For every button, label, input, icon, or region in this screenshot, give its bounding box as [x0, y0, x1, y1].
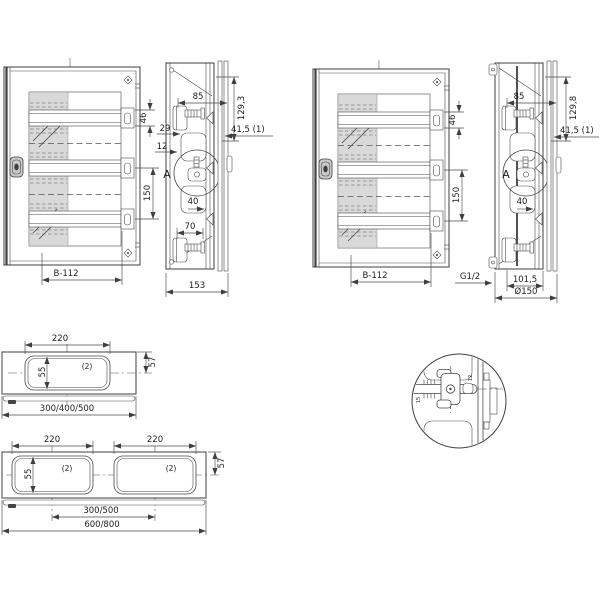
- dim-150-label: 150: [452, 187, 462, 203]
- door-lock: [319, 159, 332, 179]
- dimension-gland: G1/2: [455, 272, 492, 283]
- din-row: [29, 158, 134, 178]
- detail-dim-left-label: 15: [416, 397, 422, 403]
- din-row: [338, 110, 443, 130]
- dimension-total-depth: 153: [166, 273, 228, 297]
- chassis-lower: [424, 421, 472, 453]
- dim-57-label: 57: [217, 458, 227, 469]
- detail-ref-label: A: [163, 168, 171, 181]
- dimension-centers: 300/500: [52, 506, 155, 517]
- front-view-left: 46 150 B-112: [4, 58, 159, 285]
- door-lock: [10, 157, 23, 177]
- dim-70-label: 70: [185, 222, 196, 232]
- dim-centers-label: 300/500: [83, 506, 118, 516]
- qty-left-label: (2): [62, 464, 73, 473]
- din-row: [338, 211, 443, 231]
- dim-85-label: 85: [514, 92, 525, 102]
- front-view-right: 46 150 B-112: [313, 60, 468, 287]
- side-view-left: 85 129,3 29 41,5 (1) 12 A 40 70: [155, 61, 273, 297]
- cable-space-upper: [181, 133, 206, 161]
- detail-ref-label: A: [502, 168, 510, 181]
- dimension-door-thickness: 41,5 (1): [554, 126, 599, 137]
- dim-recess-label: 101,5: [513, 275, 537, 285]
- dim-129-label: 129,3: [237, 96, 247, 120]
- dim-gland-label: G1/2: [460, 272, 480, 282]
- dim-150-label: 150: [143, 185, 153, 201]
- dim-220-label: 220: [52, 334, 68, 344]
- dim-41-label: 41,5 (1): [560, 126, 594, 136]
- dim-41-label: 41,5 (1): [231, 125, 265, 135]
- dim-220-left-label: 220: [44, 435, 60, 445]
- din-row: [338, 160, 443, 180]
- dim-total-widths-label: 600/800: [84, 520, 119, 530]
- dim-widths-label: 300/400/500: [40, 404, 94, 414]
- top-view-single: 220 55 (2) 57 300/400/500: [2, 334, 158, 419]
- dim-12-label: 12: [157, 142, 168, 152]
- detail-dim-right-label: 12: [468, 375, 474, 381]
- qty-label: (2): [82, 362, 93, 371]
- din-row: [29, 108, 134, 128]
- dim-29-label: 29: [160, 124, 171, 134]
- dim-129-label: 129,8: [569, 96, 579, 120]
- dim-diameter-label: Ø150: [515, 286, 538, 297]
- dim-220-right-label: 220: [147, 435, 163, 445]
- base-foot: [8, 504, 16, 508]
- technical-drawing-canvas: 46 150 B-112: [0, 0, 600, 600]
- door-handle: [556, 157, 561, 173]
- base-strip: [3, 396, 135, 401]
- dim-width-label: B-112: [53, 269, 78, 279]
- latch-slot: [463, 384, 473, 394]
- dimension-cutout-width: 220: [25, 334, 110, 354]
- detail-view-a: 15 12: [410, 348, 506, 453]
- dim-46-label: 46: [448, 115, 458, 126]
- base-strip: [3, 500, 205, 505]
- dimension-cutout-width-left: 220: [12, 435, 93, 454]
- din-row: [29, 209, 134, 229]
- dimension-edge: 57: [137, 352, 158, 373]
- dim-85-label: 85: [193, 92, 204, 102]
- base-foot: [8, 400, 16, 404]
- dim-40-label: 40: [188, 197, 199, 207]
- side-view-right: 85 129,8 41,5 (1) A 40 G1/2 101,5 Ø15: [455, 61, 599, 303]
- door-profile: [547, 61, 561, 271]
- dim-width-label: B-112: [362, 271, 387, 281]
- dim-40-label: 40: [517, 197, 528, 207]
- dim-55-label: 55: [24, 469, 34, 480]
- top-view-double: 220 220 55 (2) (2) 57 300/500 600/800: [2, 435, 227, 535]
- door-handle: [227, 156, 232, 172]
- dim-57-label: 57: [148, 357, 158, 368]
- dimension-door-thickness: 41,5 (1): [225, 125, 273, 136]
- cable-cutout-right: [114, 456, 196, 494]
- dim-46-label: 46: [139, 113, 149, 124]
- dim-153-label: 153: [189, 281, 205, 291]
- side-body: [166, 63, 214, 269]
- dim-55-label: 55: [38, 367, 48, 378]
- door-profile: [218, 61, 232, 271]
- cable-space-upper: [510, 133, 535, 161]
- dimension-edge: 57: [208, 452, 227, 475]
- qty-right-label: (2): [166, 464, 177, 473]
